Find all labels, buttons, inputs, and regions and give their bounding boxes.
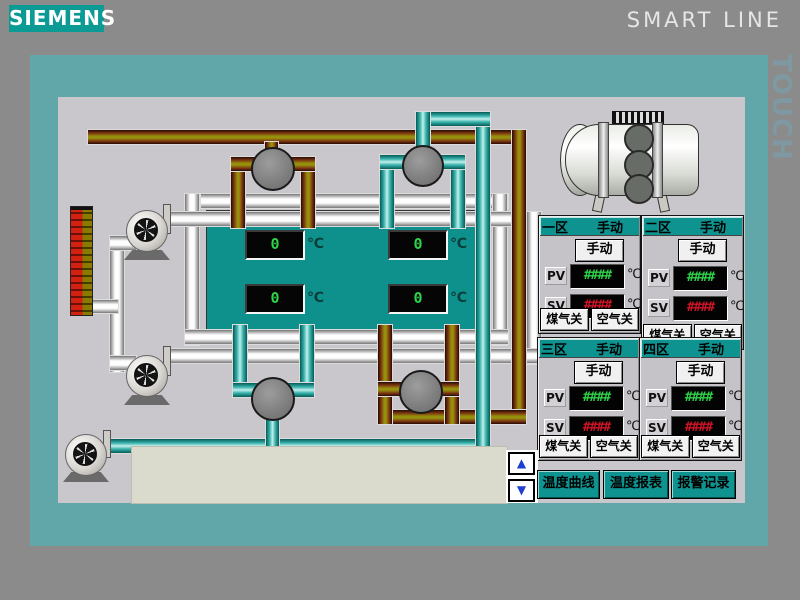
water-pipe (476, 112, 490, 453)
water-mixer-valve (402, 145, 444, 187)
manual-mode-button[interactable]: 手动 (678, 239, 727, 262)
scroll-down-button[interactable]: ▼ (508, 479, 535, 502)
air-off-button[interactable]: 空气关 (591, 308, 640, 331)
gas-pipe-main (88, 130, 526, 144)
tank-manhole (624, 174, 654, 204)
arrow-up-icon: ▲ (517, 456, 526, 470)
zone-name: 四区 (643, 339, 669, 358)
sv-label: SV (648, 299, 670, 317)
sv-unit: ℃ (730, 299, 745, 314)
scroll-up-button[interactable]: ▲ (508, 452, 535, 475)
fan-icon (134, 218, 158, 242)
gas-off-button[interactable]: 煤气关 (539, 435, 588, 458)
zone-name: 三区 (541, 339, 567, 358)
water-pipe (380, 162, 394, 228)
temperature-report-button[interactable]: 温度报表 (603, 470, 669, 499)
pv-display: #### (569, 386, 624, 411)
arrow-down-icon: ▼ (517, 483, 526, 497)
furnace-temp-display: 0 (245, 284, 305, 314)
furnace-temp-unit: ℃ (450, 290, 467, 306)
manual-mode-button[interactable]: 手动 (574, 361, 623, 384)
pv-label: PV (545, 267, 567, 285)
sv-display: #### (673, 296, 728, 321)
zone-panel-1: 一区 手动 手动 PV #### ℃ SV #### ℃ 煤气关 空气关 (538, 215, 641, 334)
zone-header: 三区 手动 (539, 339, 638, 358)
gas-mixer-valve (399, 370, 443, 414)
air-off-button[interactable]: 空气关 (692, 435, 741, 458)
product-name: SMART LINE (627, 8, 782, 32)
furnace-temp-unit: ℃ (307, 290, 324, 306)
touch-label: TOUCH (768, 54, 796, 174)
zone-header: 二区 手动 (643, 217, 742, 236)
sv-unit: ℃ (728, 419, 743, 434)
zone-panel-3: 三区 手动 手动 PV #### ℃ SV #### ℃ 煤气关 空气关 (537, 337, 640, 461)
zone-mode: 手动 (596, 339, 622, 358)
zone-name: 一区 (542, 217, 568, 236)
hmi-screen: SIEMENS SMART LINE TOUCH 0 ℃ 0 ℃ 0 ℃ 0 ℃ (0, 0, 800, 600)
manual-mode-button[interactable]: 手动 (575, 239, 624, 262)
zone-header: 四区 手动 (641, 339, 740, 358)
zone-panel-2: 二区 手动 手动 PV #### ℃ SV #### ℃ 煤气关 空气关 (641, 215, 744, 350)
zone-mode: 手动 (597, 217, 623, 236)
alarm-record-button[interactable]: 报警记录 (671, 470, 736, 499)
pv-display: #### (671, 386, 726, 411)
zone-header: 一区 手动 (540, 217, 639, 236)
pv-unit: ℃ (728, 389, 743, 404)
furnace-temp-unit: ℃ (450, 236, 467, 252)
manual-mode-button[interactable]: 手动 (676, 361, 725, 384)
zone-name: 二区 (645, 217, 671, 236)
temperature-curve-button[interactable]: 温度曲线 (537, 470, 600, 499)
furnace-temp-display: 0 (245, 230, 305, 260)
zone-panel-4: 四区 手动 手动 PV #### ℃ SV #### ℃ 煤气关 空气关 (639, 337, 742, 461)
heater-stack (70, 206, 93, 316)
gas-mixer-valve (251, 147, 295, 191)
furnace-temp-display: 0 (388, 284, 448, 314)
gas-pipe (231, 164, 245, 228)
zone-mode: 手动 (698, 339, 724, 358)
gas-pipe (301, 164, 315, 228)
pv-unit: ℃ (627, 267, 642, 282)
pv-label: PV (646, 389, 668, 407)
pv-display: #### (673, 266, 728, 291)
gas-pipe (445, 325, 459, 424)
gas-off-button[interactable]: 煤气关 (641, 435, 690, 458)
gas-pipe (512, 130, 526, 424)
water-pipe (451, 162, 465, 228)
siemens-logo: SIEMENS (9, 5, 104, 32)
gas-off-button[interactable]: 煤气关 (540, 308, 589, 331)
zone-mode: 手动 (700, 217, 726, 236)
pv-unit: ℃ (730, 269, 745, 284)
pv-label: PV (544, 389, 566, 407)
status-strip (131, 446, 508, 504)
tank-strap (598, 122, 609, 198)
air-off-button[interactable]: 空气关 (590, 435, 639, 458)
furnace-temp-display: 0 (388, 230, 448, 260)
fan-icon (73, 442, 97, 466)
gas-pipe (378, 325, 392, 424)
fan-icon (134, 363, 158, 387)
pv-display: #### (570, 264, 625, 289)
water-mixer-valve (251, 377, 295, 421)
furnace-temp-unit: ℃ (307, 236, 324, 252)
pv-label: PV (648, 269, 670, 287)
